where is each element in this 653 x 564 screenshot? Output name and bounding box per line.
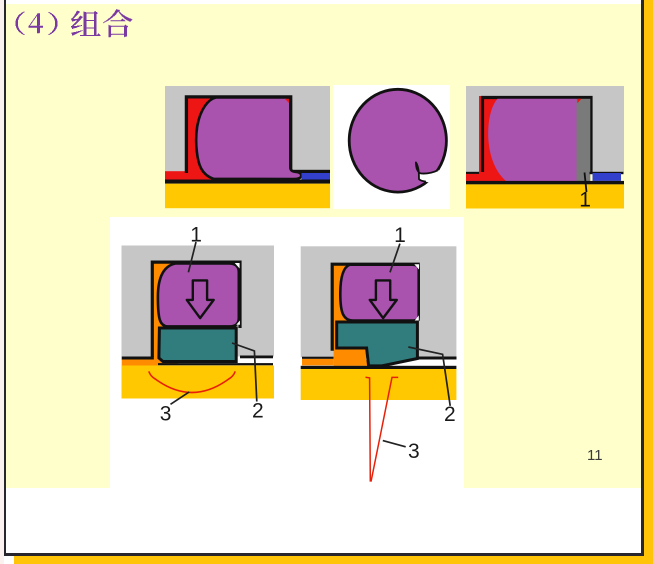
svg-text:2: 2	[444, 403, 456, 426]
svg-text:1: 1	[190, 224, 202, 247]
svg-text:1: 1	[394, 224, 406, 247]
svg-text:2: 2	[252, 400, 264, 423]
svg-text:3: 3	[160, 403, 172, 426]
svg-text:3: 3	[408, 440, 420, 463]
svg-text:1: 1	[579, 188, 591, 208]
